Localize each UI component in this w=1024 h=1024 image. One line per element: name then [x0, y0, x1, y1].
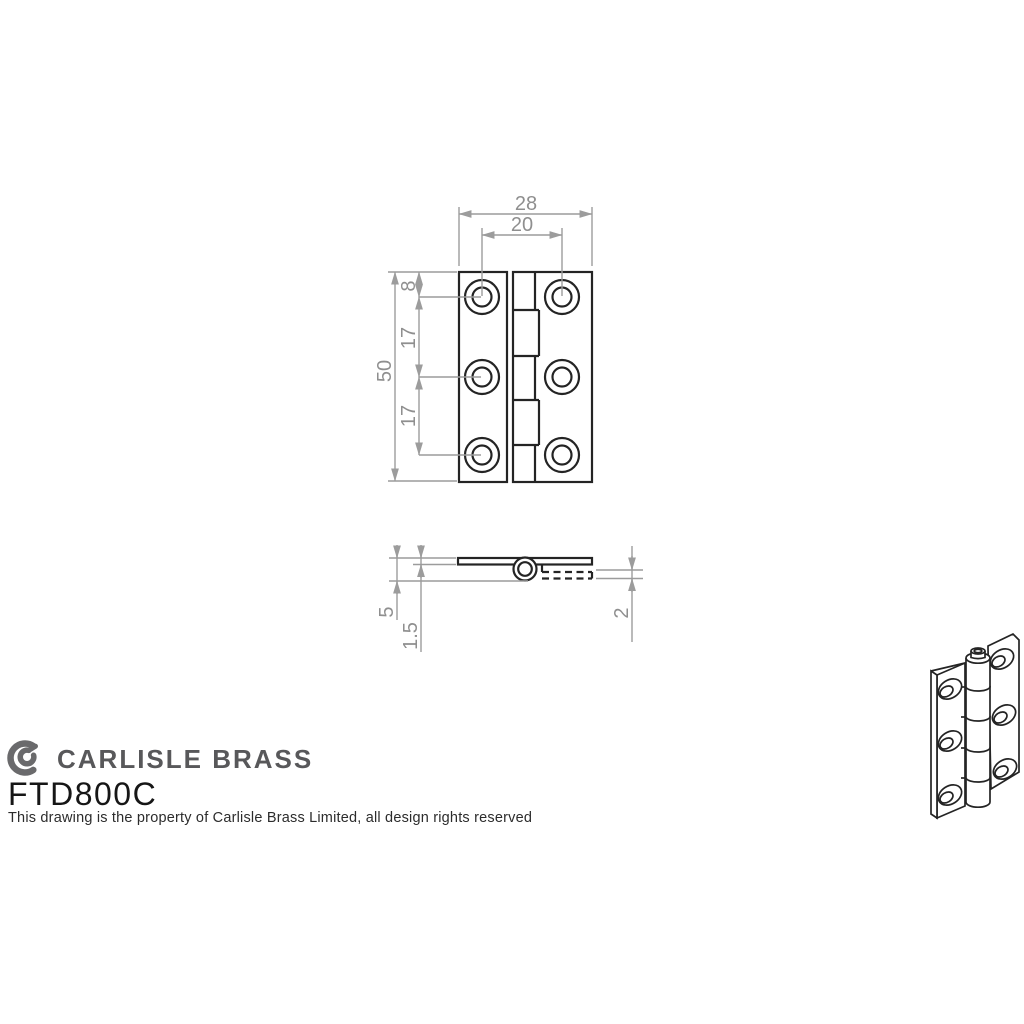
dim-label-knuckle: 5 — [376, 606, 398, 617]
dimension-leaf-thickness: 1.5 — [400, 545, 456, 652]
dimension-second-leaf: 2 — [596, 546, 643, 642]
drawing-sheet: 28 20 50 8 17 17 — [0, 0, 1024, 1024]
dim-label-second-leaf: 2 — [611, 607, 633, 618]
rights-notice: This drawing is the property of Carlisle… — [8, 810, 608, 826]
dim-label-hole-span: 20 — [511, 214, 533, 236]
dim-label-pitch-a: 17 — [398, 327, 420, 349]
knuckle-segments — [513, 272, 539, 482]
dim-label-leaf-thickness: 1.5 — [400, 622, 422, 650]
knuckle-barrel — [514, 558, 537, 581]
dim-label-height: 50 — [374, 360, 396, 382]
technical-drawing: 28 20 50 8 17 17 — [0, 0, 1024, 1024]
isometric-view — [931, 634, 1020, 818]
carlisle-brass-logo-icon — [11, 744, 36, 773]
iso-barrel — [966, 658, 990, 807]
dim-label-pitch-b: 17 — [398, 405, 420, 427]
dim-label-edge-to-hole: 8 — [398, 280, 420, 291]
iso-pin-top — [971, 648, 985, 658]
screw-holes-front — [465, 280, 579, 472]
side-view: 5 1.5 2 — [376, 545, 643, 652]
front-view: 28 20 50 8 17 17 — [374, 193, 592, 482]
dim-label-width: 28 — [515, 193, 537, 215]
dimension-hole-chain: 8 17 17 — [398, 272, 481, 455]
iso-left-leaf-edge — [931, 671, 937, 818]
product-code: FTD800C — [8, 776, 308, 813]
dimension-knuckle: 5 — [376, 545, 528, 620]
hidden-leaf-profile — [542, 572, 592, 579]
brand-name: CARLISLE BRASS — [57, 744, 477, 775]
